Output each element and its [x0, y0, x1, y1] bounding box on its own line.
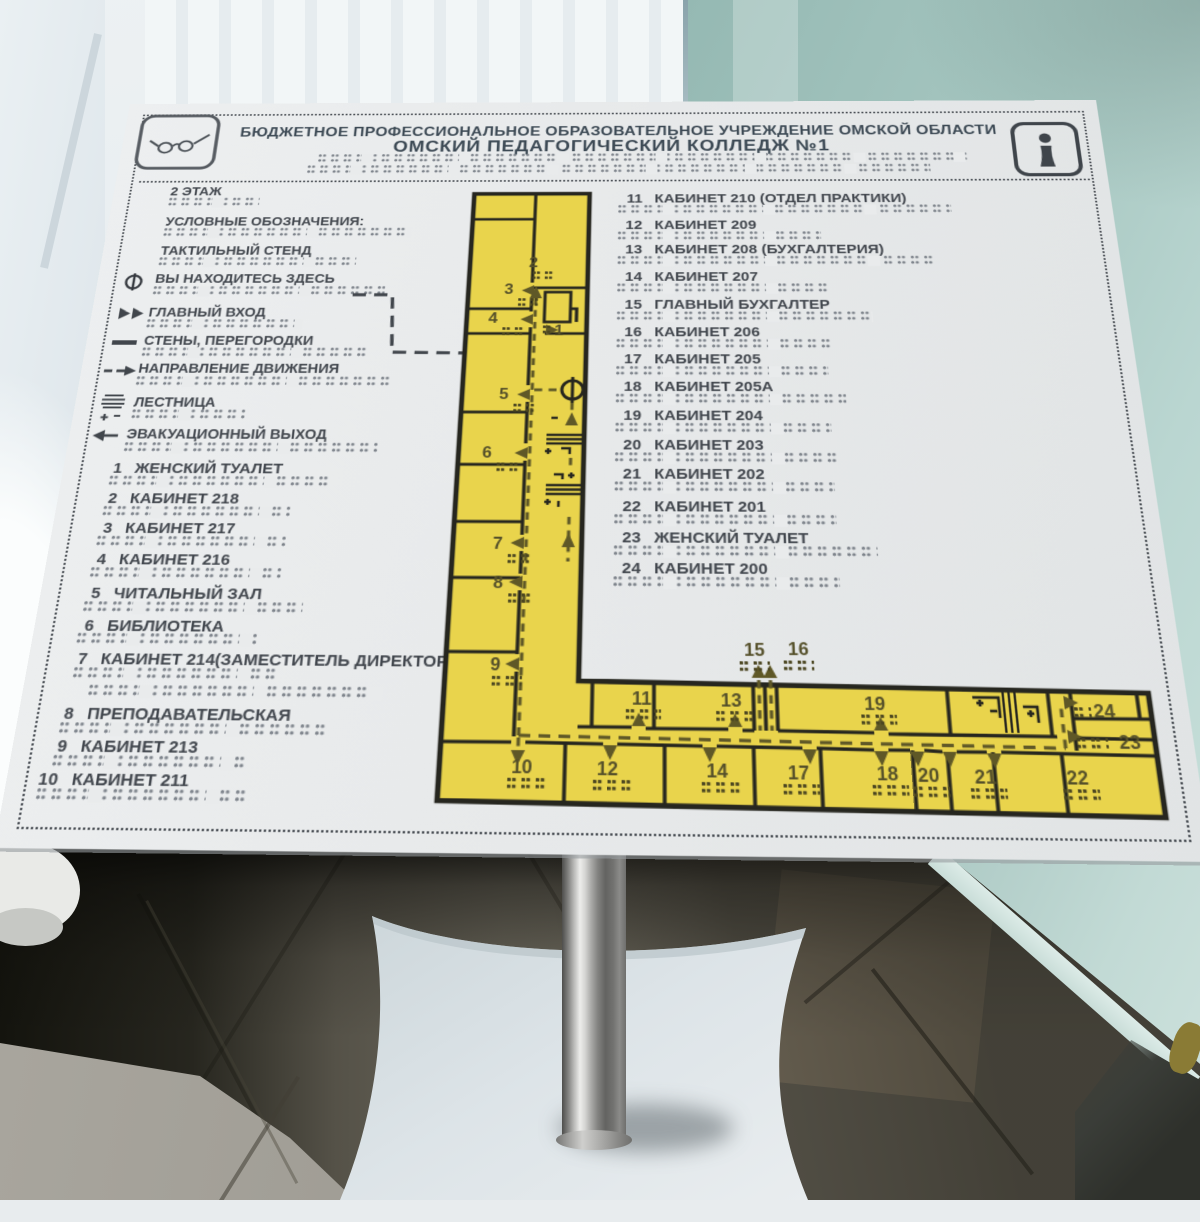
svg-text:4: 4	[488, 310, 499, 326]
svg-text:11: 11	[632, 689, 652, 709]
svg-text:19: 19	[864, 694, 887, 714]
svg-text:24: 24	[1092, 702, 1116, 722]
svg-text:23: 23	[1118, 733, 1143, 753]
svg-text:9: 9	[490, 655, 502, 674]
svg-text:2: 2	[529, 255, 539, 270]
svg-text:8: 8	[493, 573, 504, 591]
svg-text:14: 14	[706, 761, 728, 782]
svg-text:3: 3	[504, 282, 514, 297]
svg-text:1: 1	[554, 323, 564, 339]
svg-text:22: 22	[1066, 768, 1091, 789]
svg-text:20: 20	[917, 765, 941, 786]
svg-text:10: 10	[511, 757, 533, 778]
svg-text:21: 21	[974, 767, 998, 788]
svg-text:15: 15	[744, 641, 766, 660]
svg-text:16: 16	[788, 640, 810, 659]
svg-text:6: 6	[482, 444, 493, 461]
svg-text:12: 12	[597, 759, 619, 780]
svg-text:7: 7	[492, 535, 503, 553]
svg-text:18: 18	[876, 764, 899, 785]
svg-text:5: 5	[499, 386, 510, 402]
svg-text:17: 17	[787, 763, 809, 784]
svg-text:13: 13	[720, 691, 742, 711]
